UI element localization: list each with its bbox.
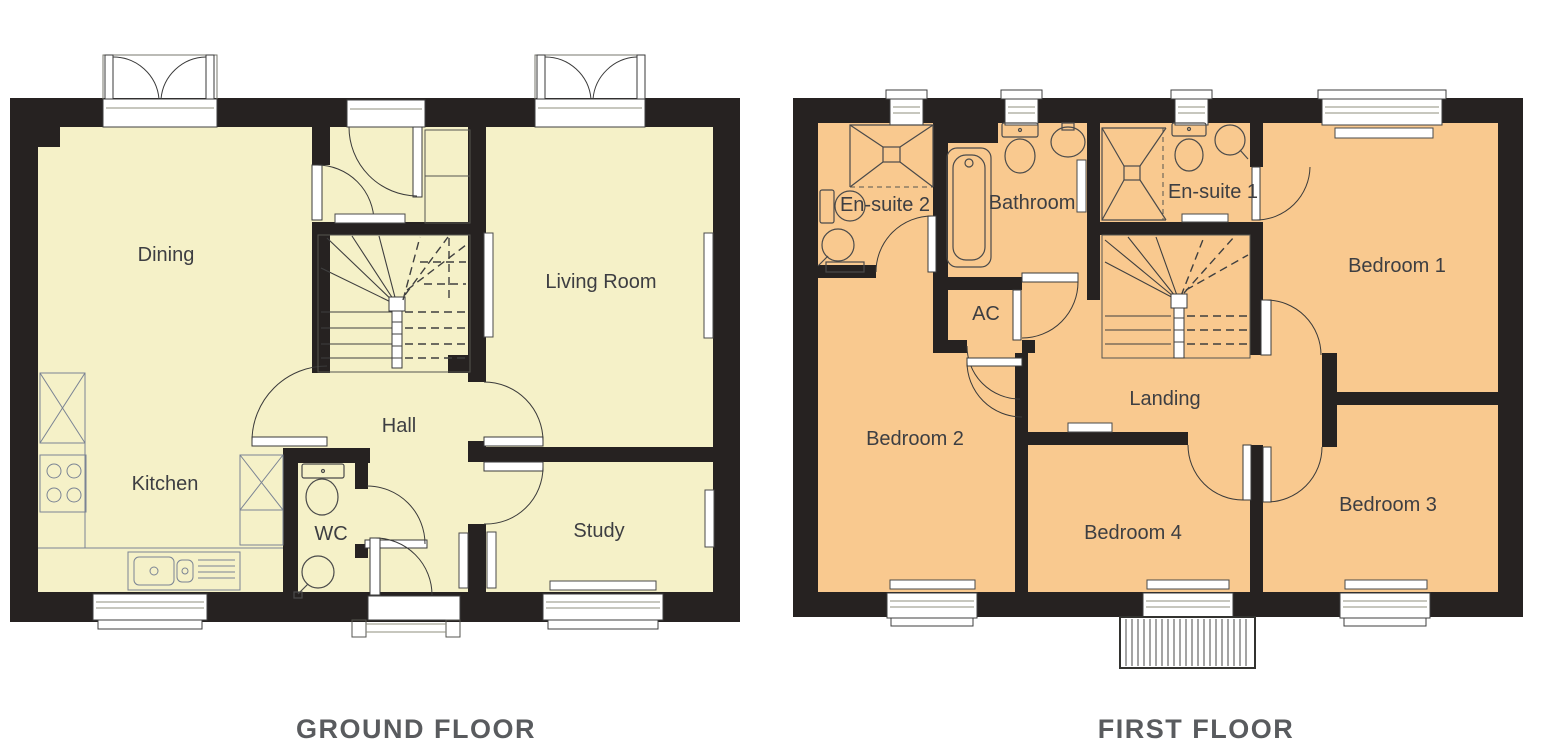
kitchen-window: [93, 594, 207, 629]
bedroom3-window: [1340, 580, 1430, 626]
first-floor-plan: En-suite 2 Bathroom En-suite 1 Bedroom 1…: [793, 90, 1523, 744]
room-label-landing: Landing: [1129, 388, 1200, 410]
bedroom2-window: [887, 580, 977, 626]
ensuite2-window: [886, 90, 927, 125]
room-label-ensuite2: En-suite 2: [840, 194, 930, 216]
bedroom4-window: [1143, 580, 1233, 618]
entrance-canopy: [1120, 617, 1255, 668]
bathroom-radiator: [1077, 160, 1086, 212]
room-label-hall: Hall: [382, 415, 416, 437]
first-floor-title: FIRST FLOOR: [1098, 714, 1294, 744]
room-label-kitchen: Kitchen: [132, 473, 199, 495]
ensuite1-radiator: [1182, 214, 1228, 222]
floor-plan-image: Dining Kitchen WC Hall Living Room Study…: [0, 0, 1548, 753]
landing-radiator: [1068, 423, 1112, 432]
room-label-ac: AC: [972, 303, 1000, 325]
room-label-wc: WC: [314, 523, 347, 545]
floor-plan-page: Dining Kitchen WC Hall Living Room Study…: [0, 0, 1548, 753]
room-label-study: Study: [573, 520, 624, 542]
room-label-bedroom4: Bedroom 4: [1084, 522, 1182, 544]
hall-radiator: [335, 214, 405, 223]
front-door-entrance: [352, 596, 460, 637]
study-window: [543, 581, 663, 629]
room-label-ensuite1: En-suite 1: [1168, 181, 1258, 203]
bathroom-window: [1001, 90, 1042, 125]
french-doors-living: [535, 55, 645, 127]
room-label-bedroom1: Bedroom 1: [1348, 255, 1446, 277]
room-label-bedroom3: Bedroom 3: [1339, 494, 1437, 516]
bedroom1-window: [1318, 90, 1446, 138]
room-label-bedroom2: Bedroom 2: [866, 428, 964, 450]
room-label-bathroom: Bathroom: [989, 192, 1076, 214]
ground-floor-title: GROUND FLOOR: [296, 714, 536, 744]
ground-floor-plan: Dining Kitchen WC Hall Living Room Study…: [10, 55, 740, 744]
ensuite1-window: [1171, 90, 1212, 125]
room-label-dining: Dining: [138, 244, 195, 266]
room-label-living-room: Living Room: [545, 271, 656, 293]
french-doors-dining: [103, 55, 217, 127]
